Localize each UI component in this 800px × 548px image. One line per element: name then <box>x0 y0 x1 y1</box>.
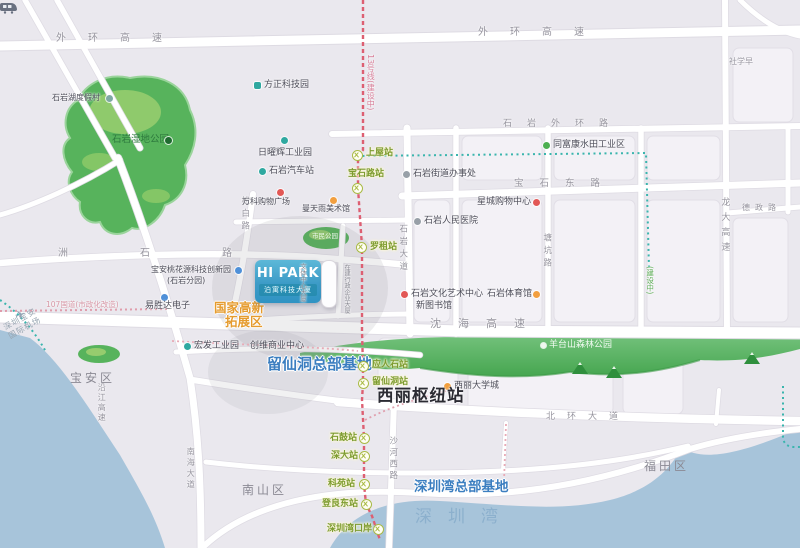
metro-construction-note: (建设中) <box>645 266 654 294</box>
poi-label-tongfukang: 同富康水田工业区 <box>553 140 625 150</box>
building-label-under-construction: 在建行政企业大厦 <box>343 264 350 314</box>
poi-label-art-center: 石岩文化艺术中心 <box>411 289 483 299</box>
metro-line13-note: 13号线(建设中) <box>366 54 375 110</box>
station-label-shangwu: 上屋站 <box>366 148 393 158</box>
poi-label-riyao: 日曜辉工业园 <box>258 148 312 158</box>
hub-label-xili: 西丽枢纽站 <box>377 387 465 406</box>
station-label-baoshilu: 宝石路站 <box>348 169 384 179</box>
road-label-shahe-west: 沙河西路 <box>387 436 397 482</box>
industrial-zone-icon <box>543 142 550 149</box>
road-label-shenhai-expwy: 沈海高速 <box>430 318 542 331</box>
poi-label-village: 社学早 <box>729 57 753 66</box>
zone-label-hitech-line2: 拓展区 <box>225 315 263 329</box>
station-label-denglliangdong: 登良东站 <box>322 499 358 509</box>
art-center-icon <box>401 291 408 298</box>
road-label-shiyan-outer: 石岩外环路 <box>503 119 623 129</box>
poi-label-hongfa: 宏发工业园 <box>194 341 239 351</box>
gymnasium-icon <box>533 291 540 298</box>
train-icon <box>0 0 18 14</box>
promo-map: 外环高速 外环高速 沈海高速 龙大高速 洲石路 石岩外环路 宝石东路 德政路 松… <box>0 0 800 548</box>
road-label-outer-ring-west: 外环高速 <box>56 33 184 45</box>
tech-park-icon <box>254 82 261 89</box>
station-label-keyuan: 科苑站 <box>328 479 355 489</box>
tower-building <box>321 260 337 308</box>
poi-label-skyworth: 创维商业中心 <box>250 341 304 351</box>
metro-station-icon <box>361 499 372 510</box>
poi-label-taohuayuan-line1: 宝安桃花源科技创新园 <box>151 265 231 274</box>
metro-station-icon <box>373 524 384 535</box>
building-label-wenti: 文体中心大厦 <box>298 263 305 302</box>
park-label-wetland: 石岩湿地公园 <box>112 135 169 146</box>
resort-icon <box>106 95 113 102</box>
district-label-futian: 福田区 <box>644 460 689 474</box>
innovation-park-icon <box>235 267 242 274</box>
metro-station-icon <box>359 479 370 490</box>
road-label-dezheng: 德政路 <box>742 203 781 212</box>
poi-label-vanke-plaza: 万科购物广场 <box>242 197 290 206</box>
metro-station-icon <box>359 433 370 444</box>
bay-label: 深圳湾 <box>415 508 514 528</box>
station-label-luozu: 罗租站 <box>370 242 397 252</box>
metro-station-icon <box>352 183 363 194</box>
poi-label-art-museum: 曼天雨美术馆 <box>302 204 350 213</box>
road-label-yanjiang: 沿江高速 <box>97 383 106 423</box>
station-label-shenzhenwan: 深圳湾口岸 <box>327 524 372 534</box>
poi-label-library: 新图书馆 <box>416 301 452 311</box>
road-label-beihuan: 北环大道 <box>546 412 630 422</box>
poi-label-subdistrict-office: 石岩街道办事处 <box>413 169 476 179</box>
station-label-shigu: 石鼓站 <box>330 433 357 443</box>
art-museum-icon <box>330 197 337 204</box>
station-label-shenda: 深大站 <box>331 451 358 461</box>
hongfa-icon <box>184 343 191 350</box>
road-label-g107: 107国道(市政化改造) <box>46 301 119 310</box>
metro-station-icon <box>358 378 369 389</box>
road-label-zhoushi: 洲石路 <box>58 248 304 260</box>
zone-label-shenzhenbay-hq: 深圳湾总部基地 <box>414 480 509 496</box>
park-label-civic: 市民公园 <box>312 233 338 240</box>
poi-label-yishengda: 易胜达电子 <box>145 301 190 311</box>
park-label-yangtai: 羊台山森林公园 <box>549 340 612 350</box>
road-label-outer-ring-east: 外环高速 <box>478 27 606 39</box>
poi-label-gymnasium: 石岩体育馆 <box>487 289 532 299</box>
hipark-title: HI PARK <box>255 266 321 281</box>
government-icon <box>403 171 410 178</box>
road-label-shiyan-ave: 石岩大道 <box>397 224 407 274</box>
hipark-landmark: HI PARK 泊寓科技大厦 <box>255 260 321 303</box>
metro-station-icon <box>352 150 363 161</box>
poi-label-fangzheng: 方正科技园 <box>264 80 309 90</box>
poi-label-taohuayuan-line2: (石岩分园) <box>167 276 205 285</box>
park-icon <box>165 137 172 144</box>
industrial-park-icon <box>281 137 288 144</box>
poi-label-bus-station: 石岩汽车站 <box>269 166 314 176</box>
electronics-icon <box>161 294 168 301</box>
district-label-baoan: 宝安区 <box>70 372 115 386</box>
road-label-longda-expwy: 龙大高速 <box>719 197 729 257</box>
road-label-tangkeng: 塘坑路 <box>541 233 551 271</box>
park-icon <box>541 343 546 348</box>
road-label-baoshi-east: 宝石东路 <box>514 179 616 190</box>
poi-label-xingcheng-mall: 星城购物中心 <box>477 197 531 207</box>
zone-label-liuxiandong-hq: 留仙洞总部基地 <box>267 356 372 373</box>
station-label-yingrenshi: 应人石站 <box>372 360 408 370</box>
mall-icon <box>533 199 540 206</box>
metro-station-icon <box>359 451 370 462</box>
metro-station-icon <box>356 242 367 253</box>
road-label-nanhai: 南海大道 <box>186 447 195 491</box>
poi-label-resort: 石岩湖度假村 <box>52 93 100 102</box>
poi-label-hospital: 石岩人民医院 <box>424 216 478 226</box>
shopping-plaza-icon <box>277 189 284 196</box>
district-label-nanshan: 南山区 <box>242 484 287 498</box>
hipark-subtitle: 泊寓科技大厦 <box>259 284 317 296</box>
bus-station-icon <box>259 168 266 175</box>
metro-station-icon <box>358 361 369 372</box>
hospital-icon <box>414 218 421 225</box>
